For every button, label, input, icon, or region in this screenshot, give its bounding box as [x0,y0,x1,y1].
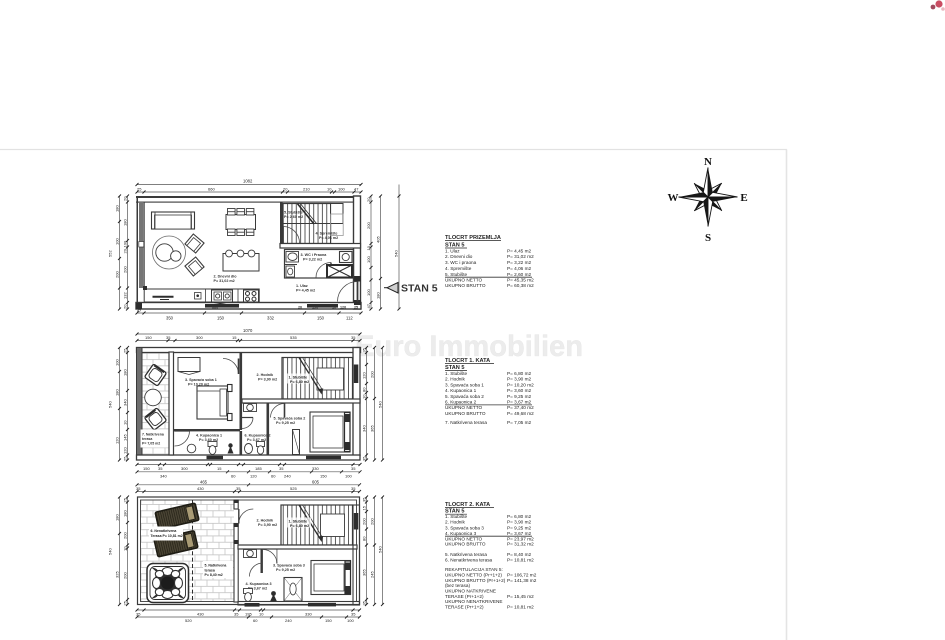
svg-text:47: 47 [354,187,359,192]
svg-text:3. Spavaća soba 1: 3. Spavaća soba 1 [445,382,484,387]
svg-text:3. WC i Praona: 3. WC i Praona [301,253,328,257]
svg-text:UKUPNO BRUTTO: UKUPNO BRUTTO [445,542,486,547]
svg-text:6. Kupaonica 2: 6. Kupaonica 2 [445,400,477,405]
svg-text:15: 15 [217,466,222,471]
svg-text:7. Natkrivena: 7. Natkrivena [142,433,164,437]
svg-text:200: 200 [362,518,367,525]
svg-text:1. Stubište: 1. Stubište [289,376,308,380]
svg-text:3. Spavaća soba 3: 3. Spavaća soba 3 [273,564,305,568]
svg-text:UKUPNO NATKRIVENE: UKUPNO NATKRIVENE [445,588,496,593]
svg-text:35: 35 [351,466,356,471]
svg-text:540: 540 [378,401,383,408]
svg-text:1. Stubište: 1. Stubište [445,514,468,519]
svg-text:6. Kupaonica 2: 6. Kupaonica 2 [245,434,271,438]
svg-text:185: 185 [255,466,262,471]
svg-text:10: 10 [332,306,336,310]
svg-text:100: 100 [338,187,345,192]
svg-text:P= 3,90 m2: P= 3,90 m2 [507,520,531,525]
svg-text:200: 200 [370,518,375,525]
svg-text:120: 120 [250,473,257,478]
svg-text:540: 540 [108,401,113,408]
svg-text:STAN 5: STAN 5 [401,283,438,295]
svg-text:P= 106,72 m2: P= 106,72 m2 [507,572,537,577]
svg-text:P= 6,80 m2: P= 6,80 m2 [290,380,309,384]
svg-text:35: 35 [362,456,367,461]
svg-text:4. Kupaonica 1: 4. Kupaonica 1 [445,388,477,393]
svg-text:150: 150 [320,473,327,478]
svg-text:100: 100 [345,473,352,478]
svg-text:330: 330 [305,612,312,617]
svg-text:240: 240 [284,473,291,478]
svg-text:100: 100 [115,359,120,366]
svg-text:P= 7,05 m2: P= 7,05 m2 [507,420,531,425]
svg-text:100: 100 [347,618,354,623]
svg-text:120: 120 [123,447,128,454]
svg-text:20: 20 [298,306,302,310]
svg-text:150: 150 [325,618,332,623]
svg-text:100: 100 [123,240,128,247]
svg-text:330: 330 [312,466,319,471]
svg-text:25: 25 [123,348,128,353]
svg-text:150: 150 [217,316,225,321]
svg-text:190: 190 [312,306,318,310]
svg-text:E: E [740,192,747,204]
svg-text:1070: 1070 [243,328,253,333]
svg-text:10: 10 [327,187,332,192]
svg-text:terasa: terasa [205,568,215,572]
svg-text:20: 20 [366,197,371,202]
svg-text:P= 10,81 m2: P= 10,81 m2 [507,605,534,610]
svg-text:P= 2,60 m2: P= 2,60 m2 [507,272,531,277]
svg-text:240: 240 [285,618,292,623]
svg-text:N: N [704,156,712,168]
svg-text:47: 47 [366,303,371,308]
svg-text:4. Spremište: 4. Spremište [445,266,472,271]
svg-text:332: 332 [267,316,275,321]
svg-text:UKUPNO NETTO: UKUPNO NETTO [445,536,483,541]
svg-text:35: 35 [166,335,171,340]
svg-text:340: 340 [160,473,167,478]
svg-text:UKUPNO NETTO: UKUPNO NETTO [445,405,483,410]
svg-text:1. Stubište: 1. Stubište [445,371,468,376]
svg-text:100: 100 [115,238,120,245]
svg-text:35: 35 [234,612,239,617]
svg-text:35: 35 [351,612,356,617]
svg-text:540: 540 [108,548,113,555]
svg-text:5. Natkrivena terasa: 5. Natkrivena terasa [445,552,487,557]
svg-text:325: 325 [115,571,120,578]
svg-text:20: 20 [123,196,128,201]
svg-text:P= 10,81 m2: P= 10,81 m2 [507,557,534,562]
svg-text:UKUPNO NETTO (Pr+1+2): UKUPNO NETTO (Pr+1+2) [445,572,502,577]
svg-text:525: 525 [290,486,297,491]
svg-text:150: 150 [145,335,152,340]
svg-text:W: W [668,192,679,204]
svg-text:P= 15,45 m2: P= 15,45 m2 [507,594,534,599]
svg-text:180: 180 [115,514,120,521]
svg-text:15: 15 [232,335,237,340]
svg-text:P= 8,40 m2: P= 8,40 m2 [205,573,223,577]
svg-text:47: 47 [137,309,141,313]
svg-text:P= 3,22 m2: P= 3,22 m2 [303,258,322,262]
svg-text:5. Stubište: 5. Stubište [284,211,303,215]
svg-text:P= 45,35 m2: P= 45,35 m2 [507,278,534,283]
svg-text:195: 195 [245,612,252,617]
svg-text:405: 405 [376,236,381,243]
svg-text:132: 132 [123,292,128,299]
svg-text:10: 10 [123,420,128,425]
svg-text:430: 430 [197,486,204,491]
svg-text:365: 365 [370,425,375,432]
svg-text:35: 35 [158,466,163,471]
svg-text:520: 520 [185,618,192,623]
svg-text:1. Ulaz: 1. Ulaz [296,284,308,288]
svg-text:P= 3,90 m2: P= 3,90 m2 [507,377,531,382]
svg-text:100: 100 [366,289,371,296]
svg-text:4. Kupaonica 1: 4. Kupaonica 1 [196,434,222,438]
svg-text:(bez terasa): (bez terasa) [445,583,470,588]
svg-text:660: 660 [208,187,215,192]
svg-text:540: 540 [378,546,383,553]
svg-text:10: 10 [123,546,128,551]
svg-text:10: 10 [259,612,264,617]
svg-text:P= 4,45 m2: P= 4,45 m2 [507,248,531,253]
svg-text:35: 35 [362,600,367,605]
svg-text:P= 4,45 m2: P= 4,45 m2 [296,289,315,293]
svg-text:200: 200 [366,222,371,229]
svg-text:15: 15 [362,505,367,510]
svg-text:P= 4,06 m2: P= 4,06 m2 [507,266,531,271]
svg-text:145: 145 [123,434,128,441]
svg-text:TLOCRT 2. KATA: TLOCRT 2. KATA [445,502,490,508]
svg-text:2. Dnevni dio: 2. Dnevni dio [445,254,473,259]
svg-text:5. Stubište: 5. Stubište [445,272,468,277]
svg-text:P= 10,20 m2: P= 10,20 m2 [188,383,209,387]
svg-text:P= 49,68 m2: P= 49,68 m2 [507,411,534,416]
svg-text:3. Spavaća soba 1: 3. Spavaća soba 1 [185,378,217,382]
svg-text:P= 3,67 m2: P= 3,67 m2 [507,400,531,405]
svg-text:terasa: terasa [142,437,152,441]
svg-text:3. WC i praona: 3. WC i praona [445,260,477,265]
svg-text:200: 200 [123,572,128,579]
svg-text:20: 20 [123,304,128,309]
svg-text:20: 20 [123,248,128,253]
svg-text:150: 150 [317,316,325,321]
svg-text:200: 200 [123,266,128,273]
svg-text:1. Stubište: 1. Stubište [289,520,308,524]
svg-text:180: 180 [115,205,120,212]
svg-text:150: 150 [143,466,150,471]
svg-text:P= 10,20 m2: P= 10,20 m2 [507,382,534,387]
svg-text:P= 3,22 m2: P= 3,22 m2 [507,260,531,265]
svg-text:100: 100 [366,256,371,263]
svg-text:P= 4,06 m2: P= 4,06 m2 [319,236,338,240]
svg-text:25: 25 [123,600,128,605]
svg-text:465: 465 [200,479,208,484]
svg-text:P= 6,80 m2: P= 6,80 m2 [290,524,309,528]
svg-text:35: 35 [362,497,367,502]
svg-text:2. Hodnik: 2. Hodnik [257,519,275,523]
svg-text:245: 245 [370,571,375,578]
svg-text:5. Spavaća soba 2: 5. Spavaća soba 2 [274,417,306,421]
svg-text:80: 80 [362,387,367,392]
svg-text:3. Spavaća soba 3: 3. Spavaća soba 3 [445,525,484,530]
svg-text:120: 120 [362,372,367,379]
svg-text:1. Ulaz: 1. Ulaz [445,248,460,253]
svg-text:120: 120 [340,306,346,310]
svg-text:5. Spavaća soba 2: 5. Spavaća soba 2 [445,394,484,399]
svg-text:P= 37,40 m2: P= 37,40 m2 [507,405,534,410]
svg-text:TLOCRT 1. KATA: TLOCRT 1. KATA [445,358,490,364]
svg-text:UKUPNO NETTO: UKUPNO NETTO [445,278,483,283]
svg-text:UKUPNO BRUTTO: UKUPNO BRUTTO [445,283,486,288]
svg-text:2. Dnevni dio: 2. Dnevni dio [214,275,238,279]
svg-text:35: 35 [279,466,284,471]
svg-text:5. Natkrivena: 5. Natkrivena [205,564,227,568]
svg-text:25: 25 [123,456,128,461]
svg-text:180: 180 [376,292,381,299]
svg-text:P= 31,02 m2: P= 31,02 m2 [214,279,235,283]
svg-text:P= 2,60 m2: P= 2,60 m2 [284,215,303,219]
svg-text:35: 35 [362,347,367,352]
svg-text:300: 300 [181,466,188,471]
svg-text:540: 540 [394,250,399,257]
svg-text:4. Spremište: 4. Spremište [316,232,338,236]
svg-text:P= 8,40 m2: P= 8,40 m2 [507,552,531,557]
svg-text:P= 3,60 m2: P= 3,60 m2 [507,388,531,393]
svg-text:60: 60 [271,473,276,478]
svg-text:25: 25 [354,306,358,310]
svg-text:S: S [705,232,711,244]
svg-text:605: 605 [312,479,320,484]
svg-text:60: 60 [253,618,258,623]
svg-text:25: 25 [137,187,142,192]
svg-text:180: 180 [123,219,128,226]
svg-text:6. Nenatkrivena: 6. Nenatkrivena [151,529,177,533]
svg-text:P= 6,80 m2: P= 6,80 m2 [507,371,531,376]
svg-text:120: 120 [115,437,120,444]
svg-text:430: 430 [197,612,204,617]
svg-text:P= 7,05 m2: P= 7,05 m2 [142,442,160,446]
svg-text:P= 3,67 m2: P= 3,67 m2 [507,531,531,536]
svg-text:P= 9,25 m2: P= 9,25 m2 [507,394,531,399]
svg-text:180: 180 [123,369,128,376]
svg-text:4. Kupaonica 3: 4. Kupaonica 3 [445,531,477,536]
svg-text:2. Hodnik: 2. Hodnik [445,520,465,525]
svg-text:35: 35 [236,486,241,491]
svg-text:UKUPNO BRUTTO: UKUPNO BRUTTO [445,411,486,416]
svg-text:660: 660 [212,306,218,310]
svg-text:340: 340 [362,425,367,432]
svg-text:535: 535 [290,335,297,340]
svg-text:200: 200 [123,532,128,539]
svg-text:112: 112 [346,316,353,321]
svg-text:P= 9,25 m2: P= 9,25 m2 [507,525,531,530]
svg-text:200: 200 [115,271,120,278]
svg-text:P= 3,90 m2: P= 3,90 m2 [258,378,277,382]
svg-text:2. Hodnik: 2. Hodnik [445,377,465,382]
svg-text:180: 180 [115,389,120,396]
svg-text:P= 6,80 m2: P= 6,80 m2 [507,514,531,519]
svg-text:TLOCRT PRIZEMLJA: TLOCRT PRIZEMLJA [445,235,501,241]
svg-text:1082: 1082 [243,179,253,184]
svg-text:4. Kupaonica 3: 4. Kupaonica 3 [246,582,272,586]
svg-text:REKAPITULACIJA STAN 5:: REKAPITULACIJA STAN 5: [445,567,503,572]
svg-text:Terasa P= 10,81 m2: Terasa P= 10,81 m2 [151,534,183,538]
svg-text:10: 10 [366,245,371,250]
svg-text:60: 60 [231,473,236,478]
svg-text:P= 31,32 m2: P= 31,32 m2 [507,542,534,547]
svg-text:P= 23,97 m2: P= 23,97 m2 [507,536,534,541]
svg-text:80: 80 [362,536,367,541]
svg-text:P= 3,90 m2: P= 3,90 m2 [258,523,277,527]
svg-text:10: 10 [362,394,367,399]
svg-text:340: 340 [123,399,128,406]
svg-text:P= 60,38 m2: P= 60,38 m2 [507,283,534,288]
svg-text:P= 9,25 m2: P= 9,25 m2 [276,421,295,425]
svg-text:200: 200 [370,371,375,378]
svg-text:P= 9,25 m2: P= 9,25 m2 [276,568,295,572]
svg-text:350: 350 [166,316,174,321]
svg-text:TERASE (Pr+1+2): TERASE (Pr+1+2) [445,605,484,610]
svg-text:300: 300 [196,335,203,340]
svg-text:UKUPNO NENATKRIVENE: UKUPNO NENATKRIVENE [445,599,502,604]
svg-text:P= 31,02 m2: P= 31,02 m2 [507,254,534,259]
svg-text:365: 365 [362,569,367,576]
svg-text:20: 20 [283,187,288,192]
svg-text:552: 552 [108,250,113,257]
svg-text:P= 141,38 m2: P= 141,38 m2 [507,578,537,583]
svg-text:2. Hodnik: 2. Hodnik [257,373,275,377]
svg-text:25: 25 [123,497,128,502]
svg-text:210: 210 [303,187,310,192]
svg-text:6. Nenatkrivena terasa: 6. Nenatkrivena terasa [445,557,493,562]
svg-text:7. Natkrivena terasa: 7. Natkrivena terasa [445,420,487,425]
svg-text:35: 35 [136,486,141,491]
svg-text:180: 180 [123,510,128,517]
svg-text:35: 35 [351,486,356,491]
svg-text:35: 35 [351,335,356,340]
